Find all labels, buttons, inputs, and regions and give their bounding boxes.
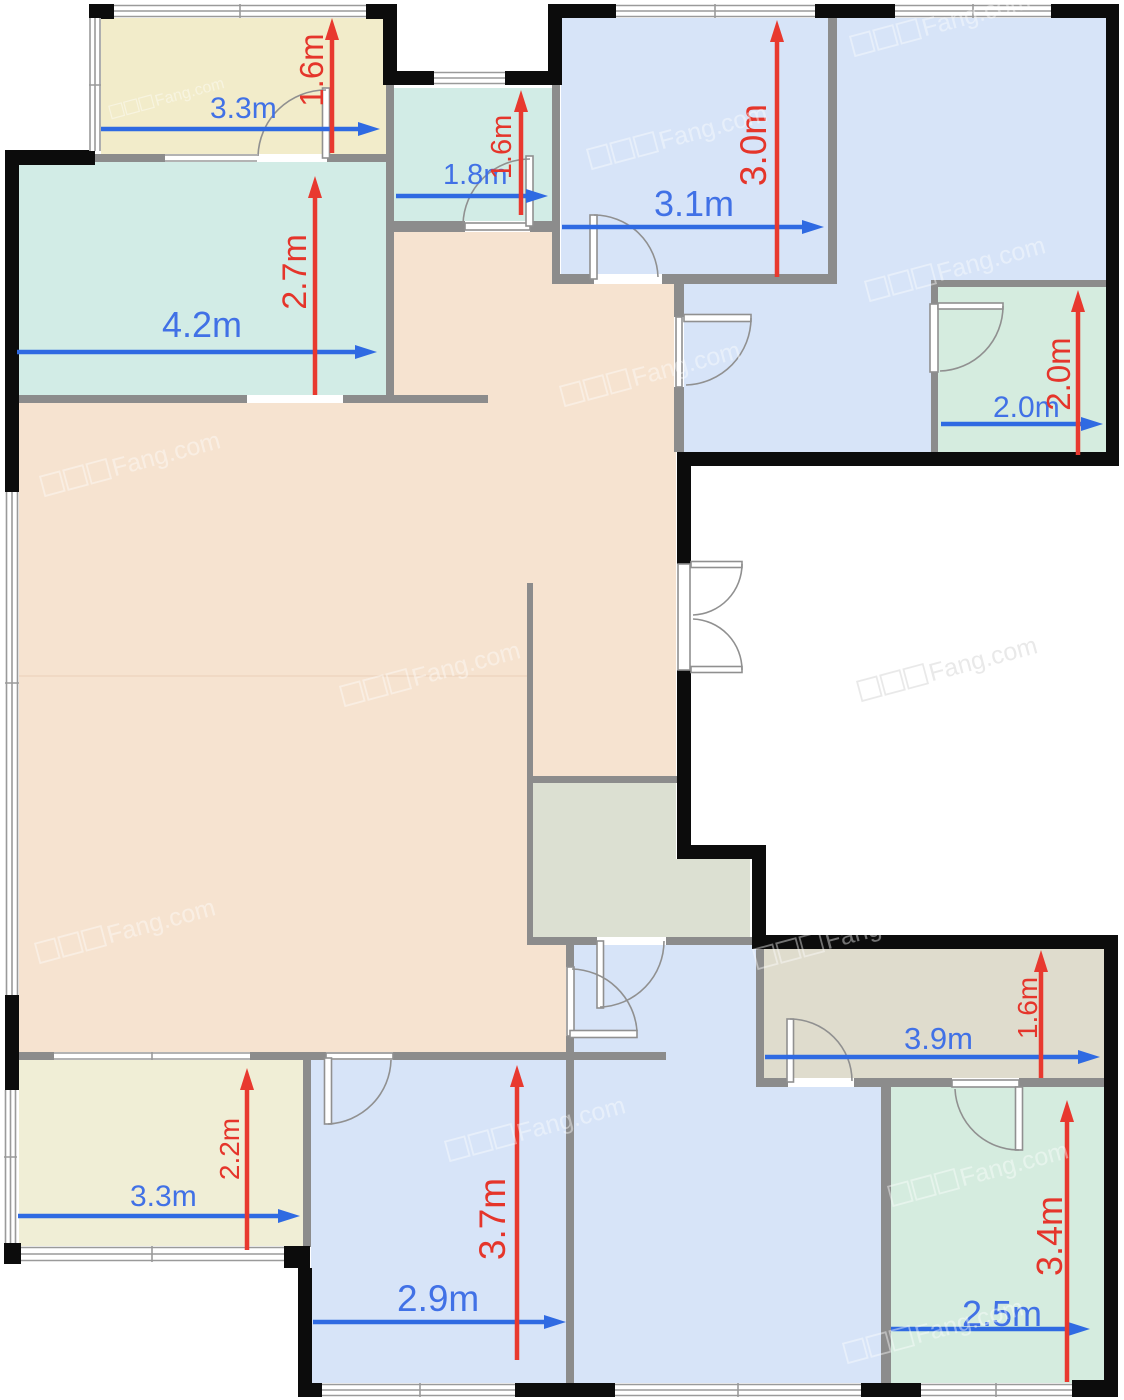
svg-text:2.0m: 2.0m: [1040, 337, 1077, 410]
svg-text:4.2m: 4.2m: [162, 304, 242, 345]
svg-text:1.6m: 1.6m: [1012, 977, 1043, 1039]
svg-text:1.6m: 1.6m: [293, 33, 330, 106]
svg-text:2.7m: 2.7m: [276, 234, 314, 310]
svg-text:3.4m: 3.4m: [1029, 1196, 1070, 1276]
svg-text:3.7m: 3.7m: [472, 1178, 513, 1260]
svg-text:3.9m: 3.9m: [904, 1021, 973, 1056]
svg-text:2.2m: 2.2m: [214, 1118, 245, 1180]
svg-text:3.1m: 3.1m: [654, 183, 734, 224]
svg-text:3.3m: 3.3m: [130, 1180, 197, 1213]
svg-text:3.3m: 3.3m: [210, 92, 277, 125]
svg-text:1.6m: 1.6m: [486, 115, 518, 179]
svg-text:2.9m: 2.9m: [397, 1278, 479, 1319]
